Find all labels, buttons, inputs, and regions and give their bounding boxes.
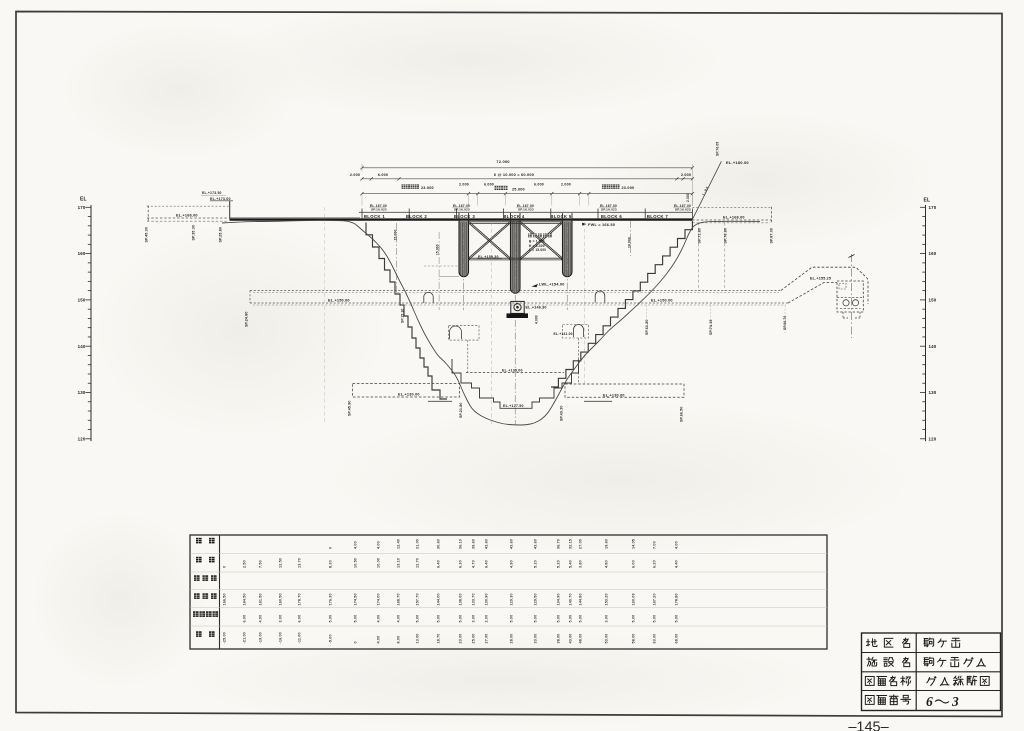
svg-text:BLOCK 2: BLOCK 2: [406, 214, 428, 219]
svg-text:19.60: 19.60: [605, 539, 609, 549]
svg-text:12.40: 12.40: [397, 539, 401, 549]
svg-text:43.60: 43.60: [485, 539, 489, 549]
svg-text:L = 15.000: L = 15.000: [529, 248, 546, 252]
svg-text:EL.+130.00: EL.+130.00: [603, 393, 625, 397]
svg-text:LWL.+154.00: LWL.+154.00: [539, 281, 565, 286]
svg-text:140.70: 140.70: [569, 593, 573, 605]
svg-text:27.00: 27.00: [485, 634, 489, 644]
svg-text:63.00: 63.00: [653, 634, 657, 644]
svg-text:BLOCK 4: BLOCK 4: [503, 214, 525, 219]
svg-text:5.00: 5.00: [675, 615, 679, 623]
svg-text:134.90: 134.90: [557, 593, 561, 605]
svg-text:SP.76.80: SP.76.80: [724, 228, 728, 244]
svg-text:18.70: 18.70: [437, 634, 441, 644]
svg-text:EL.+173.00: EL.+173.00: [210, 197, 231, 201]
svg-text:EL: EL: [80, 197, 87, 203]
svg-text:6 @ 10.000 = 60.000: 6 @ 10.000 = 60.000: [494, 172, 534, 177]
svg-text:6.00: 6.00: [298, 615, 302, 623]
svg-text:33.00: 33.00: [534, 634, 538, 644]
svg-text:4.40: 4.40: [675, 560, 679, 568]
svg-text:8.30: 8.30: [329, 560, 333, 568]
svg-text:6.000: 6.000: [534, 182, 544, 186]
svg-text:4.90: 4.90: [510, 560, 514, 568]
svg-text:5.00: 5.00: [329, 615, 333, 623]
svg-text:3.00: 3.00: [472, 615, 476, 623]
svg-text:SP.16.023: SP.16.023: [518, 208, 534, 212]
svg-text:4.000: 4.000: [535, 315, 539, 324]
svg-text:6.000: 6.000: [484, 182, 494, 186]
svg-text:2.000: 2.000: [459, 182, 469, 186]
svg-text:6.40: 6.40: [485, 560, 489, 568]
svg-text:SP.16.023: SP.16.023: [601, 208, 617, 212]
svg-text:SP.45.90: SP.45.90: [348, 400, 352, 416]
svg-text:30.60: 30.60: [437, 539, 441, 549]
svg-text:160.50: 160.50: [279, 593, 283, 605]
svg-text:5.00: 5.00: [510, 615, 514, 623]
svg-text:36.70: 36.70: [557, 539, 561, 549]
svg-text:2.00: 2.00: [485, 615, 489, 623]
svg-text:EL.+180.00: EL.+180.00: [726, 160, 749, 165]
svg-text:39.60: 39.60: [472, 539, 476, 549]
svg-text:5.00: 5.00: [579, 615, 583, 623]
svg-text:6.000: 6.000: [378, 173, 388, 177]
svg-text:0: 0: [329, 547, 333, 549]
svg-text:0: 0: [354, 641, 358, 643]
svg-text:174.50: 174.50: [354, 593, 358, 605]
svg-text:0: 0: [223, 566, 227, 568]
svg-text:EL.+127.50: EL.+127.50: [503, 404, 524, 408]
svg-text:5.00: 5.00: [557, 615, 561, 623]
svg-text:43.60: 43.60: [510, 539, 514, 549]
svg-text:4.80: 4.80: [605, 560, 609, 568]
svg-text:68.00: 68.00: [675, 634, 679, 644]
svg-text:4.00: 4.00: [377, 541, 381, 549]
svg-text:2.000: 2.000: [681, 173, 691, 177]
svg-text:23.00: 23.00: [459, 634, 463, 644]
svg-text:SP.16.023: SP.16.023: [371, 208, 387, 212]
svg-text:BLOCK 1: BLOCK 1: [364, 214, 386, 219]
svg-text:EL.+173.50: EL.+173.50: [202, 191, 222, 195]
svg-text:138.00: 138.00: [459, 593, 463, 605]
svg-text:23.000: 23.000: [421, 186, 434, 190]
svg-text:EL.+150.00: EL.+150.00: [651, 299, 673, 303]
svg-text:176.30: 176.30: [329, 593, 333, 605]
svg-text:-16.00: -16.00: [279, 632, 283, 643]
svg-text:-19.00: -19.00: [259, 632, 263, 643]
svg-text:7.00: 7.00: [653, 541, 657, 549]
svg-text:25.000: 25.000: [512, 187, 525, 191]
svg-text:167.20: 167.20: [653, 593, 657, 605]
svg-text:SP.66.50: SP.66.50: [680, 406, 684, 422]
svg-text:140: 140: [78, 344, 86, 349]
svg-text:EL.+130.00: EL.+130.00: [398, 393, 420, 397]
svg-text:EL.+168.00: EL.+168.00: [723, 215, 745, 219]
svg-text:10.00: 10.00: [377, 558, 381, 568]
svg-text:3.00: 3.00: [279, 615, 283, 623]
svg-text:2.50: 2.50: [243, 560, 247, 568]
svg-text:48.00: 48.00: [579, 634, 583, 644]
svg-text:SP.74.15: SP.74.15: [709, 319, 713, 335]
svg-text:28.00: 28.00: [510, 634, 514, 644]
svg-text:-25.00: -25.00: [223, 632, 227, 643]
svg-text:6.00: 6.00: [632, 560, 636, 568]
svg-text:166.50: 166.50: [223, 593, 227, 605]
svg-text:4.00: 4.00: [354, 541, 358, 549]
svg-text:120: 120: [929, 436, 937, 441]
svg-text:13.10: 13.10: [397, 558, 401, 568]
svg-text:150: 150: [929, 298, 937, 303]
svg-text:FWL = 166.50: FWL = 166.50: [588, 222, 615, 227]
svg-text:32.15: 32.15: [569, 539, 573, 549]
svg-text:4.00: 4.00: [397, 615, 401, 623]
svg-text:72.000: 72.000: [496, 159, 510, 164]
svg-text:5.10: 5.10: [534, 560, 538, 568]
svg-text:5.00: 5.00: [437, 615, 441, 623]
svg-text:150: 150: [78, 298, 86, 303]
svg-text:-11.00: -11.00: [298, 632, 302, 643]
svg-text:5.00: 5.00: [354, 615, 358, 623]
svg-text:EL: EL: [924, 198, 931, 204]
svg-text:27.00: 27.00: [579, 539, 583, 549]
svg-text:129.30: 129.30: [510, 593, 514, 605]
svg-text:6.40: 6.40: [437, 560, 441, 568]
svg-text:3.80: 3.80: [579, 560, 583, 568]
svg-text:130: 130: [929, 390, 937, 395]
svg-text:140: 140: [929, 344, 937, 349]
svg-text:174.00: 174.00: [377, 593, 381, 605]
svg-text:BLOCK 5: BLOCK 5: [550, 214, 572, 219]
svg-text:130.90: 130.90: [485, 593, 489, 605]
svg-text:SP.15.10: SP.15.10: [401, 309, 405, 323]
svg-text:5.00: 5.00: [632, 615, 636, 623]
svg-text:129.50: 129.50: [534, 593, 538, 605]
svg-text:43.00: 43.00: [569, 634, 573, 644]
svg-text:4.00: 4.00: [377, 615, 381, 623]
svg-text:BLOCK 6: BLOCK 6: [601, 214, 623, 219]
svg-text:36.10: 36.10: [459, 539, 463, 549]
svg-text:SP.43.30: SP.43.30: [560, 405, 564, 421]
svg-text:4.00: 4.00: [377, 636, 381, 644]
svg-text:161.50: 161.50: [259, 593, 263, 605]
svg-text:13.00: 13.00: [416, 634, 420, 644]
svg-text:18.000: 18.000: [628, 237, 632, 248]
svg-text:2.000: 2.000: [561, 182, 571, 186]
svg-text:12.50: 12.50: [279, 558, 283, 568]
svg-text:144.80: 144.80: [579, 593, 583, 605]
svg-text:EL.+135.00: EL.+135.00: [502, 369, 523, 373]
svg-text:EL.+141.00: EL.+141.00: [554, 332, 573, 336]
svg-text:SP.45.00: SP.45.00: [145, 227, 149, 243]
svg-text:SP.24.80: SP.24.80: [245, 311, 249, 327]
svg-text:2.000: 2.000: [350, 173, 360, 177]
svg-text:13.70: 13.70: [298, 558, 302, 568]
svg-text:EL.+150.00: EL.+150.00: [328, 298, 350, 302]
svg-text:-5.00: -5.00: [329, 634, 333, 643]
svg-text:-21.00: -21.00: [243, 632, 247, 643]
svg-text:EL.+168.00: EL.+168.00: [176, 214, 198, 218]
svg-text:170: 170: [78, 205, 86, 210]
svg-text:14.05: 14.05: [632, 539, 636, 549]
svg-text:5.40: 5.40: [569, 560, 573, 568]
svg-text:4.00: 4.00: [675, 541, 679, 549]
svg-text:25.00: 25.00: [472, 634, 476, 644]
svg-text:–145–: –145–: [848, 720, 889, 731]
svg-text:7.50: 7.50: [259, 560, 263, 568]
svg-text:144.00: 144.00: [437, 593, 441, 605]
svg-text:170: 170: [929, 205, 937, 210]
svg-text:5.00: 5.00: [569, 615, 573, 623]
svg-text:EL.+159.30: EL.+159.30: [478, 255, 499, 259]
svg-text:133.70: 133.70: [472, 593, 476, 605]
svg-text:160: 160: [929, 251, 937, 256]
svg-text:15.000: 15.000: [435, 244, 439, 255]
svg-text:153.20: 153.20: [605, 593, 609, 605]
svg-text:12.70: 12.70: [416, 558, 420, 568]
svg-text:5.00: 5.00: [534, 615, 538, 623]
svg-text:178.80: 178.80: [675, 593, 679, 605]
svg-text:58.00: 58.00: [632, 634, 636, 644]
svg-text:5.00: 5.00: [653, 615, 657, 623]
svg-text:164.50: 164.50: [243, 593, 247, 605]
svg-text:3.00: 3.00: [605, 615, 609, 623]
svg-text:15.000: 15.000: [394, 229, 398, 240]
svg-text:53.00: 53.00: [605, 634, 609, 644]
svg-text:5.20: 5.20: [557, 560, 561, 568]
svg-text:43.60: 43.60: [534, 539, 538, 549]
svg-text:SP.76.05: SP.76.05: [716, 142, 720, 156]
svg-text:SP.16.023: SP.16.023: [675, 208, 691, 212]
svg-text:SP.25.80: SP.25.80: [219, 227, 223, 243]
svg-text:SP.61.20: SP.61.20: [645, 319, 649, 335]
svg-text:157.70: 157.70: [416, 593, 420, 605]
svg-text:5.00: 5.00: [459, 615, 463, 623]
svg-text:EL.+155.25: EL.+155.25: [810, 277, 831, 281]
svg-text:178.70: 178.70: [298, 593, 302, 605]
svg-text:6.20: 6.20: [653, 560, 657, 568]
svg-text:SP.87.00: SP.87.00: [770, 228, 774, 244]
svg-text:38.00: 38.00: [557, 634, 561, 644]
svg-text:4.00: 4.00: [259, 615, 263, 623]
svg-text:SP.16.023: SP.16.023: [454, 208, 470, 212]
svg-text:120: 120: [78, 436, 86, 441]
svg-text:3: 3: [951, 694, 959, 709]
svg-text:5.00: 5.00: [416, 615, 420, 623]
svg-text:SP.21.80: SP.21.80: [459, 402, 463, 418]
svg-text:21.00: 21.00: [416, 539, 420, 549]
svg-text:23.000: 23.000: [622, 186, 635, 190]
svg-text:2.000: 2.000: [686, 193, 690, 202]
svg-text:SP.86.70: SP.86.70: [783, 316, 787, 330]
svg-text:10.50: 10.50: [354, 558, 358, 568]
svg-text:BLOCK 7: BLOCK 7: [647, 214, 669, 219]
svg-text:168.70: 168.70: [397, 593, 401, 605]
svg-text:SP.35.30: SP.35.30: [192, 225, 196, 241]
svg-text:SP.71.80: SP.71.80: [698, 228, 702, 244]
svg-text:6.30: 6.30: [459, 560, 463, 568]
svg-text:8.00: 8.00: [397, 636, 401, 644]
svg-text:BLOCK 3: BLOCK 3: [454, 214, 476, 219]
svg-text:6: 6: [926, 694, 933, 709]
svg-text:130: 130: [78, 390, 86, 395]
svg-text:4.70: 4.70: [472, 560, 476, 568]
svg-text:6.00: 6.00: [243, 615, 247, 623]
svg-text:EL.+146.30: EL.+146.30: [526, 305, 547, 309]
svg-text:160.09: 160.09: [632, 593, 636, 605]
svg-text:160: 160: [78, 251, 86, 256]
